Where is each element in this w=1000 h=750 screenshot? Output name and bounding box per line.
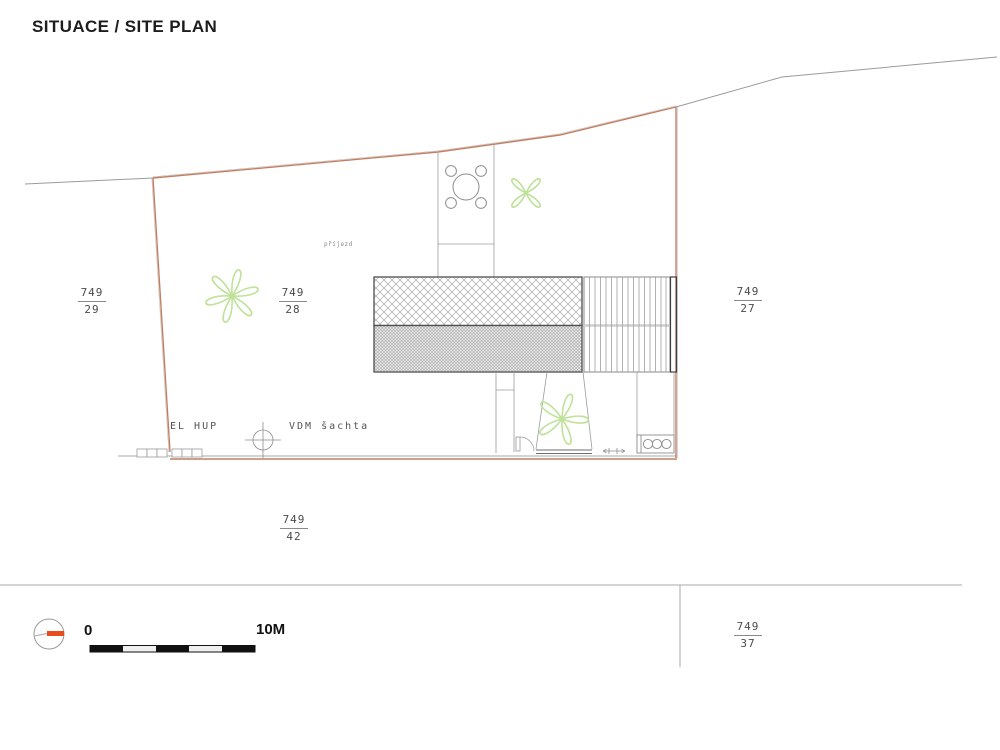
threshold-step [536, 450, 592, 454]
vdm-sachta-label: VDM šachta [289, 421, 369, 432]
parcel-number: 749 [734, 285, 763, 301]
parcel-label-749-29: 749 29 [70, 286, 114, 317]
site-plan-drawing [0, 0, 1000, 750]
parcel-subnumber: 42 [272, 529, 316, 544]
el-hup-label: EL HUP [170, 421, 218, 432]
driveway [438, 144, 494, 277]
table-chairs-icon [446, 166, 487, 209]
boundary-west [153, 178, 170, 452]
scale-end-label: 10M [256, 621, 285, 638]
page-title: SITUACE / SITE PLAN [32, 17, 217, 37]
door-swing-icon [520, 437, 534, 451]
parcel-subnumber: 37 [726, 636, 770, 651]
parcel-label-749-37: 749 37 [726, 620, 770, 651]
door-leaf [516, 437, 520, 451]
north-indicator-icon [34, 619, 64, 649]
survey-marker-icon [603, 448, 625, 454]
parcel-subnumber: 27 [726, 301, 770, 316]
site-plan-page: SITUACE / SITE PLAN 749 29 749 28 749 27… [0, 0, 1000, 750]
tree-icon [510, 177, 541, 208]
parcel-number: 749 [78, 286, 107, 302]
parcel-label-749-28: 749 28 [271, 286, 315, 317]
entry-path-edge [583, 372, 592, 449]
parcel-number: 749 [280, 513, 309, 529]
parcel-number: 749 [734, 620, 763, 636]
boundary-north [153, 107, 676, 178]
parcel-subnumber: 29 [70, 302, 114, 317]
prijezd-label: příjezd [324, 241, 353, 248]
deck-slats [584, 277, 670, 372]
tree-icon [538, 393, 588, 445]
road-lines [0, 456, 962, 667]
scale-bar [90, 646, 255, 653]
scale-start-label: 0 [84, 622, 92, 639]
building-footprint [374, 277, 582, 372]
manhole-icon [245, 422, 281, 458]
roof-hatch-upper [374, 277, 582, 326]
utility-box [637, 435, 674, 453]
parcel-label-749-27: 749 27 [726, 285, 770, 316]
parcel-label-749-42: 749 42 [272, 513, 316, 544]
roof-hatch-lower [374, 326, 582, 373]
parcel-number: 749 [279, 286, 308, 302]
tree-icon [205, 269, 259, 323]
terrain-line [25, 57, 997, 184]
parcel-subnumber: 28 [271, 302, 315, 317]
